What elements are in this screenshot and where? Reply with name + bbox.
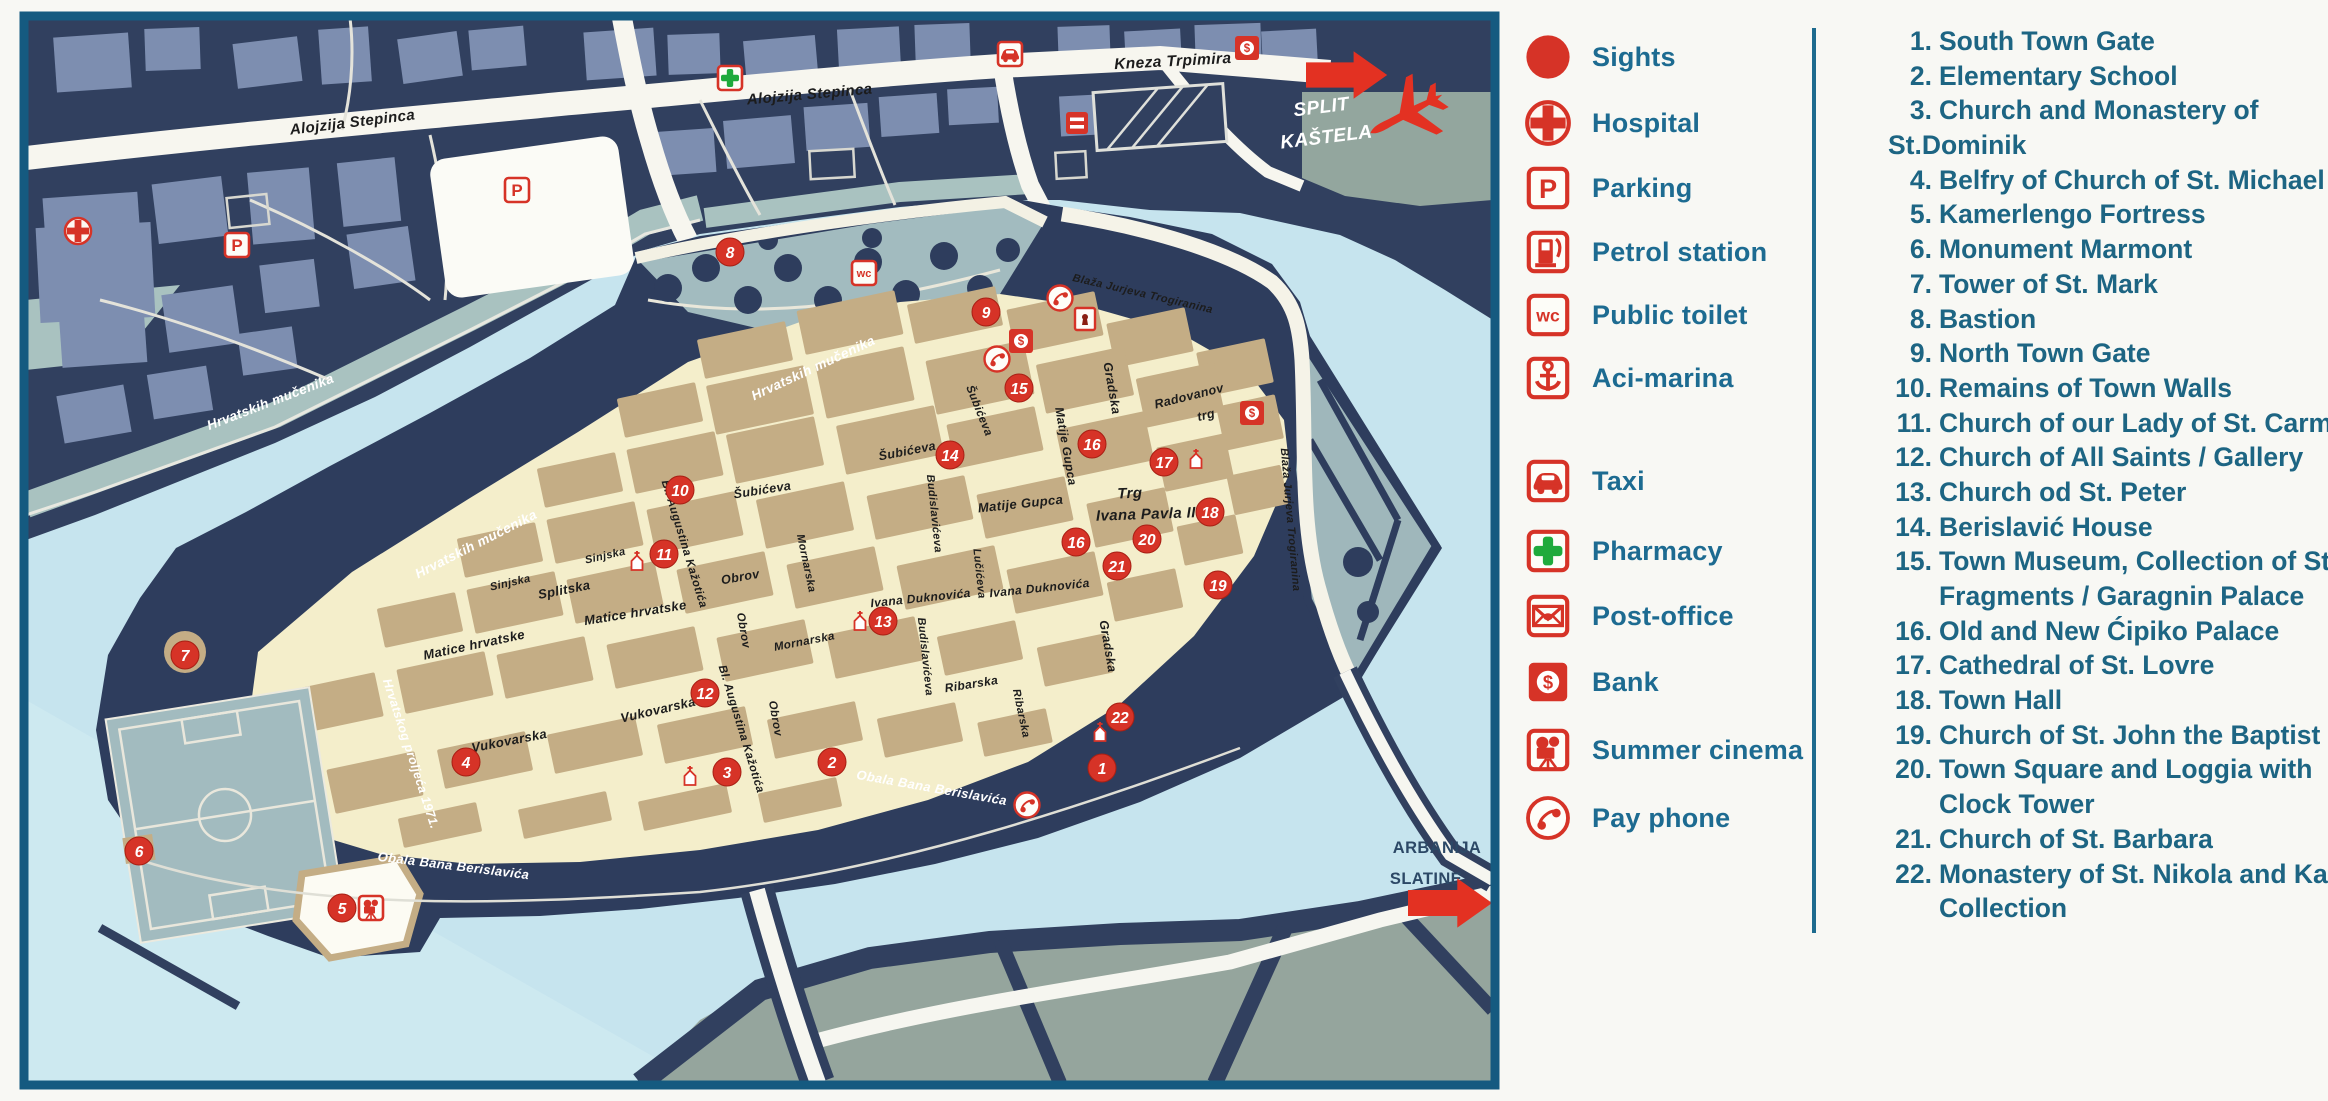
sight-list-line: Fragments / Garagnin Palace (1888, 579, 2324, 614)
sight-number: 7. (1888, 267, 1932, 302)
svg-text:7: 7 (181, 648, 191, 665)
sight-marker-5: 5 (328, 894, 356, 922)
sight-number: 9. (1888, 336, 1932, 371)
sight-marker-21: 21 (1103, 552, 1131, 580)
area-label: SLATINE (1390, 870, 1462, 888)
bank-icon: $ (1009, 329, 1033, 353)
sight-number: 17. (1888, 648, 1932, 683)
bank-icon: $ (1529, 663, 1567, 701)
sight-name: Church od St. Peter (1939, 475, 2324, 510)
sight-list-line: 2.Elementary School (1888, 59, 2324, 94)
parking-icon: P (505, 178, 529, 202)
cinema-icon (1529, 731, 1567, 769)
svg-text:$: $ (1543, 671, 1553, 692)
sight-list-line: 16.Old and New Ćipiko Palace (1888, 614, 2324, 649)
sight-marker-12: 12 (691, 679, 719, 707)
svg-text:wc: wc (1535, 305, 1560, 325)
sight-list-line: 22.Monastery of St. Nikola and Kairos (1888, 857, 2324, 892)
sight-name: Berislavić House (1939, 510, 2324, 545)
svg-text:11: 11 (656, 547, 672, 564)
hospital-icon (65, 218, 91, 244)
sight-number: 4. (1888, 163, 1932, 198)
post-icon (1529, 597, 1567, 635)
phone-icon (1015, 793, 1040, 818)
sight-number: 22. (1888, 857, 1932, 892)
sight-list-line: 10.Remains of Town Walls (1888, 371, 2324, 406)
sight-number: 10. (1888, 371, 1932, 406)
gate-icon (1075, 308, 1095, 330)
sight-name: Church and Monastery of (1939, 93, 2324, 128)
phone-icon (1524, 794, 1572, 842)
sight-list-line: Collection (1888, 891, 2324, 926)
parking-icon: P (225, 233, 249, 257)
sight-name: Fragments / Garagnin Palace (1939, 579, 2324, 614)
sight-name: Monument Marmont (1939, 232, 2324, 267)
sight-marker-15: 15 (1005, 374, 1033, 402)
taxi-icon (1529, 462, 1567, 500)
sight-name: Cathedral of St. Lovre (1939, 648, 2324, 683)
post-icon (1524, 592, 1572, 640)
svg-text:P: P (511, 181, 522, 200)
sight-number: 15. (1888, 544, 1932, 579)
area-label: ARBANIJA (1393, 839, 1481, 857)
sight-list-line: 1.South Town Gate (1888, 24, 2324, 59)
trogir-tourist-map-page: Alojzija StepincaAlojzija StepincaKneza … (0, 0, 2328, 1101)
sights-icon (1524, 33, 1572, 81)
legend-item-wc: wcPublic toilet (1524, 290, 1748, 340)
sight-marker-2: 2 (818, 748, 846, 776)
svg-text:18: 18 (1201, 505, 1219, 522)
parking-lot (428, 134, 636, 299)
cinema-icon (1524, 726, 1572, 774)
sight-name: North Town Gate (1939, 336, 2324, 371)
legend-item-bank: $Bank (1524, 657, 1659, 707)
sight-marker-16: 16 (1062, 528, 1090, 556)
svg-text:14: 14 (941, 448, 959, 465)
legend-label: Taxi (1592, 466, 1645, 497)
sight-marker-17: 17 (1150, 448, 1178, 476)
street-label: Trg (1117, 485, 1143, 503)
sight-name: Kamerlengo Fortress (1939, 197, 2324, 232)
bank-icon: $ (1524, 658, 1572, 706)
sight-marker-10: 10 (666, 476, 694, 504)
roadsign-icon (1066, 112, 1088, 134)
sight-name: Church of St. John the Baptist (1939, 718, 2324, 753)
sight-name: St.Dominik (1888, 128, 2324, 163)
park-feature (1357, 601, 1379, 623)
sight-number: 21. (1888, 822, 1932, 857)
sight-number: 3. (1888, 93, 1932, 128)
sight-name: Monastery of St. Nikola and Kairos (1939, 857, 2328, 892)
petrol-icon (1524, 228, 1572, 276)
sight-list-line: 13.Church od St. Peter (1888, 475, 2324, 510)
sight-list-line: 9.North Town Gate (1888, 336, 2324, 371)
sight-marker-7: 7 (171, 641, 199, 669)
sight-list-line: 4.Belfry of Church of St. Michael (1888, 163, 2324, 198)
svg-text:16: 16 (1083, 437, 1101, 454)
sights-icon (1526, 35, 1569, 78)
sight-list-line: 5.Kamerlengo Fortress (1888, 197, 2324, 232)
map-legend: SightsHospitalPParkingPetrol stationwcPu… (1516, 0, 1806, 1101)
parking-icon: P (1529, 169, 1567, 207)
sight-list-line: St.Dominik (1888, 128, 2324, 163)
sight-number: 11. (1888, 406, 1932, 441)
svg-text:3: 3 (723, 765, 732, 782)
sight-list-line: 20.Town Square and Loggia with (1888, 752, 2324, 787)
sight-marker-14: 14 (936, 441, 964, 469)
legend-label: Parking (1592, 173, 1692, 204)
legend-label: Public toilet (1592, 300, 1748, 331)
pharmacy-icon (718, 66, 742, 90)
sight-name: Old and New Ćipiko Palace (1939, 614, 2324, 649)
sight-list-line: 21.Church of St. Barbara (1888, 822, 2324, 857)
sight-marker-16: 16 (1078, 430, 1106, 458)
pharmacy-icon (1524, 527, 1572, 575)
legend-label: Summer cinema (1592, 735, 1803, 766)
phone-icon (1048, 286, 1073, 311)
sight-marker-6: 6 (125, 837, 153, 865)
sight-list-line: 6.Monument Marmont (1888, 232, 2324, 267)
svg-text:22: 22 (1110, 710, 1129, 727)
sight-list-line: 8.Bastion (1888, 302, 2324, 337)
bank-icon: $ (1240, 401, 1264, 425)
sight-list-line: 11.Church of our Lady of St. Carmel (1888, 406, 2324, 441)
legend-divider (1812, 28, 1816, 933)
sights-list: 1.South Town Gate2.Elementary School3.Ch… (1888, 24, 2324, 926)
cinema-icon (359, 896, 383, 920)
sight-list-line: 19.Church of St. John the Baptist (1888, 718, 2324, 753)
sight-list-line: 15.Town Museum, Collection of Stone (1888, 544, 2324, 579)
sight-marker-11: 11 (650, 540, 678, 568)
sight-list-line: Clock Tower (1888, 787, 2324, 822)
legend-label: Bank (1592, 667, 1659, 698)
bank-icon: $ (1235, 36, 1259, 60)
svg-text:$: $ (1018, 336, 1025, 348)
sight-number: 19. (1888, 718, 1932, 753)
legend-item-post: Post-office (1524, 591, 1734, 641)
legend-item-hospital: Hospital (1524, 98, 1700, 148)
wc-icon: wc (852, 261, 876, 285)
legend-item-petrol: Petrol station (1524, 227, 1767, 277)
legend-label: Post-office (1592, 601, 1734, 632)
phone-icon (1528, 798, 1568, 838)
taxi-icon (1524, 457, 1572, 505)
svg-text:15: 15 (1010, 381, 1028, 398)
wc-icon: wc (1524, 291, 1572, 339)
sight-number (1888, 787, 1932, 822)
sight-number: 2. (1888, 59, 1932, 94)
sight-name: Bastion (1939, 302, 2324, 337)
wc-icon: wc (1529, 296, 1567, 334)
svg-text:13: 13 (874, 614, 892, 631)
sight-number: 8. (1888, 302, 1932, 337)
marina-icon (1529, 359, 1567, 397)
legend-item-sights: Sights (1524, 32, 1676, 82)
sight-marker-19: 19 (1204, 571, 1232, 599)
street-label: Ivana Pavla II (1096, 504, 1197, 524)
sight-marker-4: 4 (452, 748, 480, 776)
svg-text:9: 9 (982, 305, 991, 322)
svg-text:2: 2 (827, 755, 837, 772)
sight-name: Belfry of Church of St. Michael (1939, 163, 2325, 198)
sight-name: Church of All Saints / Gallery (1939, 440, 2324, 475)
sight-number: 14. (1888, 510, 1932, 545)
svg-text:16: 16 (1067, 535, 1085, 552)
sight-list-line: 7.Tower of St. Mark (1888, 267, 2324, 302)
legend-item-parking: PParking (1524, 163, 1692, 213)
legend-item-marina: Aci-marina (1524, 353, 1734, 403)
sight-name: Church of St. Barbara (1939, 822, 2324, 857)
park-feature (1343, 547, 1373, 577)
sight-number: 6. (1888, 232, 1932, 267)
sight-name: South Town Gate (1939, 24, 2324, 59)
legend-label: Pay phone (1592, 803, 1730, 834)
legend-label: Hospital (1592, 108, 1700, 139)
svg-text:20: 20 (1137, 532, 1156, 549)
sight-list-line: 3.Church and Monastery of (1888, 93, 2324, 128)
sight-marker-9: 9 (972, 298, 1000, 326)
sight-name: Remains of Town Walls (1939, 371, 2324, 406)
sight-name: Town Square and Loggia with (1939, 752, 2324, 787)
sight-number (1888, 579, 1932, 614)
sight-list-line: 14.Berislavić House (1888, 510, 2324, 545)
svg-text:10: 10 (671, 483, 689, 500)
sight-number: 13. (1888, 475, 1932, 510)
legend-item-pharmacy: Pharmacy (1524, 526, 1723, 576)
sight-name: Town Museum, Collection of Stone (1939, 544, 2328, 579)
hospital-icon (1527, 102, 1569, 144)
svg-text:P: P (1539, 173, 1557, 204)
sight-name: Collection (1939, 891, 2324, 926)
sight-list-line: 17.Cathedral of St. Lovre (1888, 648, 2324, 683)
marina-icon (1524, 354, 1572, 402)
svg-text:4: 4 (461, 755, 471, 772)
sight-marker-22: 22 (1106, 703, 1134, 731)
hatched-lot (1093, 84, 1227, 151)
sight-marker-20: 20 (1133, 525, 1161, 553)
legend-label: Sights (1592, 42, 1676, 73)
svg-text:wc: wc (856, 268, 872, 280)
svg-text:17: 17 (1155, 455, 1174, 472)
sight-number: 18. (1888, 683, 1932, 718)
sight-number: 1. (1888, 24, 1932, 59)
sight-marker-18: 18 (1196, 498, 1224, 526)
svg-text:19: 19 (1209, 578, 1227, 595)
sight-name: Town Hall (1939, 683, 2324, 718)
svg-text:5: 5 (338, 901, 347, 918)
petrol-icon (1529, 233, 1567, 271)
legend-item-phone: Pay phone (1524, 793, 1730, 843)
svg-text:6: 6 (135, 844, 144, 861)
svg-text:8: 8 (726, 245, 735, 262)
sight-number (1888, 891, 1932, 926)
sight-marker-3: 3 (713, 758, 741, 786)
sight-number: 12. (1888, 440, 1932, 475)
phone-icon (985, 347, 1010, 372)
sight-number: 20. (1888, 752, 1932, 787)
svg-text:12: 12 (696, 686, 714, 703)
legend-item-taxi: Taxi (1524, 456, 1645, 506)
sight-number: 5. (1888, 197, 1932, 232)
sight-list-line: 12.Church of All Saints / Gallery (1888, 440, 2324, 475)
legend-label: Aci-marina (1592, 363, 1734, 394)
svg-text:1: 1 (1098, 761, 1107, 778)
sight-name: Clock Tower (1939, 787, 2324, 822)
legend-label: Pharmacy (1592, 536, 1723, 567)
svg-text:P: P (231, 236, 242, 255)
sight-marker-1: 1 (1088, 754, 1116, 782)
sight-list-line: 18.Town Hall (1888, 683, 2324, 718)
parking-icon: P (1524, 164, 1572, 212)
taxi-icon (998, 42, 1022, 66)
hospital-icon (1524, 99, 1572, 147)
sight-name: Elementary School (1939, 59, 2324, 94)
pharmacy-icon (1529, 532, 1567, 570)
svg-text:$: $ (1249, 408, 1256, 420)
legend-item-cinema: Summer cinema (1524, 725, 1803, 775)
sight-marker-8: 8 (716, 238, 744, 266)
svg-text:$: $ (1244, 43, 1251, 55)
sight-marker-13: 13 (869, 607, 897, 635)
legend-label: Petrol station (1592, 237, 1767, 268)
sight-name: Church of our Lady of St. Carmel (1939, 406, 2328, 441)
sight-number: 16. (1888, 614, 1932, 649)
svg-text:21: 21 (1107, 559, 1125, 576)
sight-name: Tower of St. Mark (1939, 267, 2324, 302)
